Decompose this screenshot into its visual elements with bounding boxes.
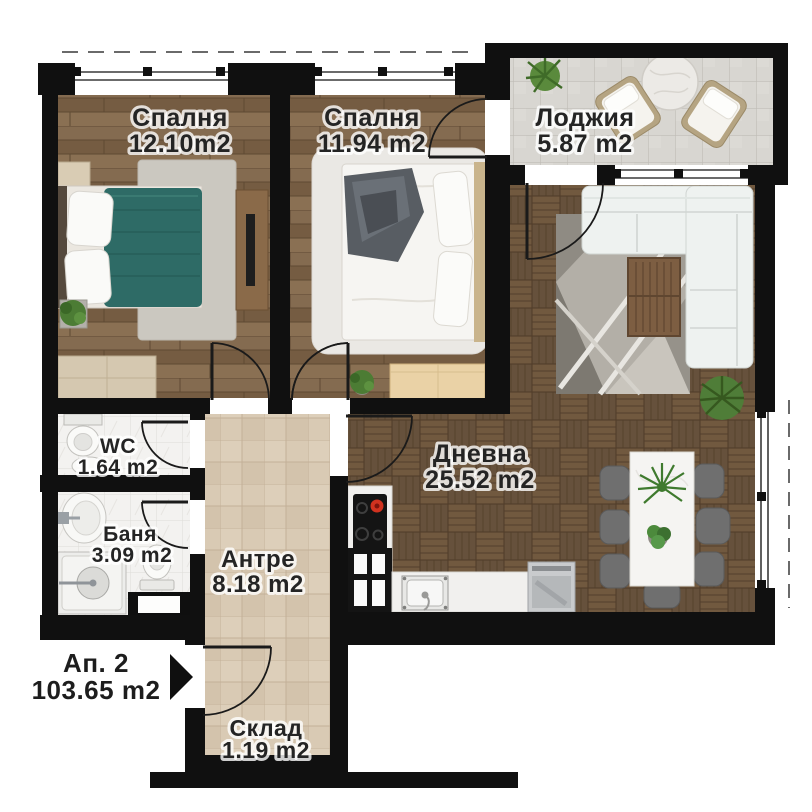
cooktop [353, 494, 387, 552]
wall [185, 615, 205, 645]
dining-chair [600, 466, 630, 500]
pillow [66, 191, 114, 248]
bedroom-2-label: Спалня [324, 104, 420, 132]
loggia-wall [485, 43, 788, 58]
wall [190, 492, 205, 500]
floor-plan-page: Спалня 12.10m2 Спалня 11.94 m2 Лоджия 5.… [0, 0, 812, 812]
wall [268, 398, 292, 414]
wc-area: 1.64 m2 [78, 456, 159, 479]
dresser [58, 356, 156, 400]
wall [330, 645, 348, 755]
dining-chair [600, 554, 630, 588]
wall [330, 476, 348, 612]
loggia-wall [773, 43, 788, 185]
window [612, 165, 749, 185]
wall [190, 468, 205, 492]
kitchen-sink [402, 576, 448, 610]
headboard [474, 162, 486, 342]
dining-chair [696, 508, 730, 544]
bath-area: 3.09 m2 [92, 544, 173, 567]
pillow [64, 249, 112, 306]
dining-set [600, 452, 730, 608]
bedroom-1-area: 12.10m2 [129, 130, 231, 158]
window [72, 63, 228, 95]
wall [485, 155, 510, 414]
living-label: Дневна [433, 440, 528, 468]
dining-chair [694, 464, 724, 498]
hall-area: 8.18 m2 [212, 571, 304, 598]
wall [330, 612, 775, 645]
wall [42, 398, 210, 414]
tv-console [236, 190, 268, 310]
bedroom-1-label: Спалня [132, 104, 228, 132]
ground-band [150, 772, 518, 788]
wall [485, 165, 525, 185]
potted-plant [60, 300, 87, 328]
pillow [432, 170, 474, 247]
desk [390, 364, 485, 402]
wall [350, 398, 510, 414]
wall [270, 63, 290, 414]
dining-chair [694, 552, 724, 586]
floor-plan: Спалня 12.10m2 Спалня 11.94 m2 Лоджия 5.… [0, 0, 812, 812]
coffee-table [628, 258, 680, 336]
window [313, 63, 455, 95]
wall [748, 165, 775, 185]
dishwasher [528, 562, 575, 612]
washing-machine-niche [128, 592, 192, 615]
storage-area: 1.19 m2 [222, 737, 310, 763]
bedroom-2-area: 11.94 m2 [318, 130, 426, 158]
dining-chair [600, 510, 630, 544]
kitchen-cabinet [348, 548, 392, 612]
living-area: 25.52 m2 [425, 466, 535, 494]
double-bed [58, 186, 202, 308]
wall [755, 185, 775, 412]
wall [42, 63, 58, 640]
floor-plant [700, 376, 744, 420]
bath-label: Баня [103, 523, 157, 546]
loggia-label: Лоджия [535, 104, 634, 132]
wall [40, 615, 205, 640]
window [755, 409, 775, 589]
tv [246, 214, 255, 286]
wall [190, 414, 205, 420]
loggia-area: 5.87 m2 [537, 130, 632, 158]
wall [190, 554, 205, 615]
toilet [64, 414, 102, 456]
double-bed [342, 162, 486, 342]
apartment-area: 103.65 m2 [32, 675, 161, 705]
pillow [433, 251, 473, 328]
apartment-label: Ап. 2 [63, 648, 129, 678]
hall-label: Антре [221, 546, 295, 573]
wc-label: WC [100, 435, 136, 458]
